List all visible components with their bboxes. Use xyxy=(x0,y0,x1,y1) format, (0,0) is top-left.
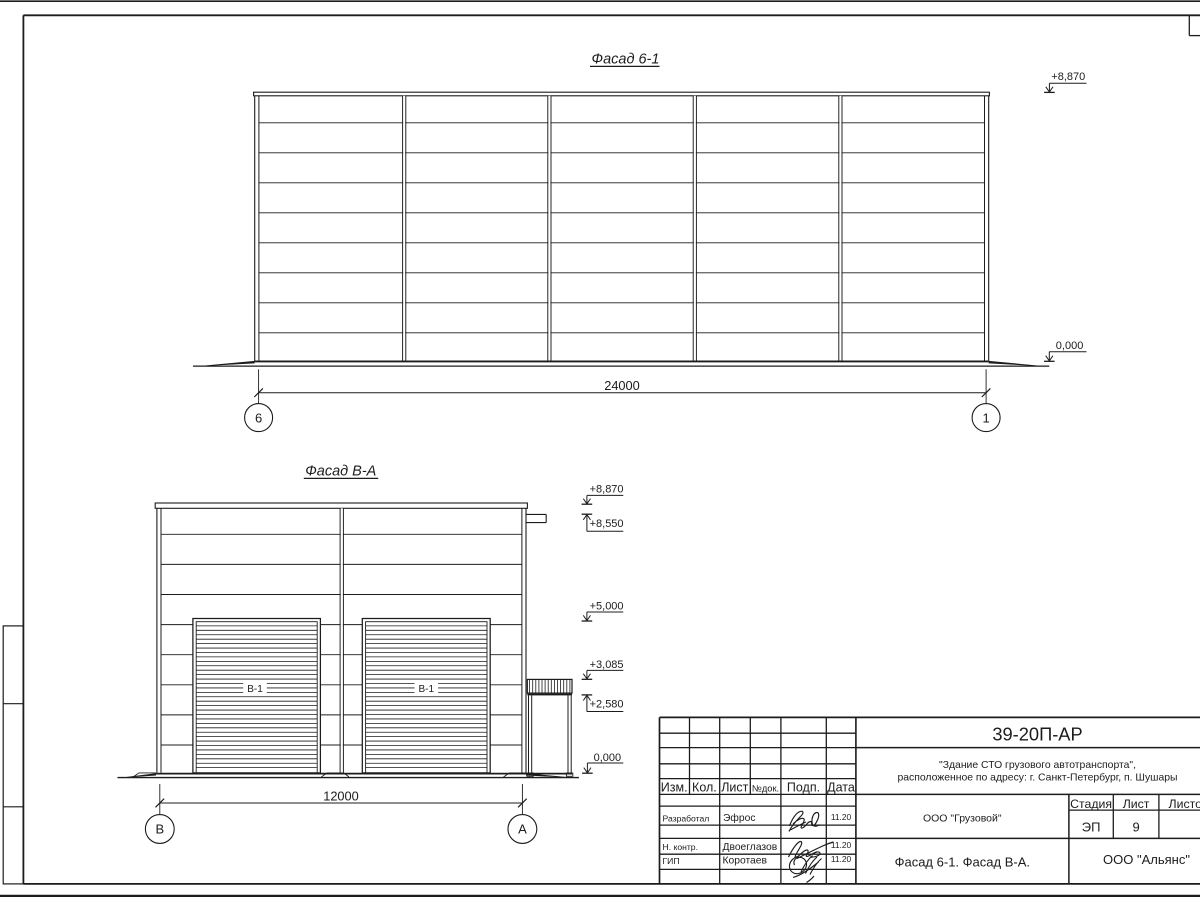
svg-text:ГИП: ГИП xyxy=(663,856,680,866)
svg-text:39-20П-АР: 39-20П-АР xyxy=(992,723,1082,744)
svg-text:11.20: 11.20 xyxy=(831,812,852,822)
svg-text:1: 1 xyxy=(982,410,989,425)
svg-text:Подп.: Подп. xyxy=(787,781,820,795)
svg-text:В: В xyxy=(155,822,164,837)
svg-text:Эфрос: Эфрос xyxy=(723,812,755,824)
svg-text:Н. контр.: Н. контр. xyxy=(663,842,698,852)
svg-text:Кол.: Кол. xyxy=(692,781,717,795)
svg-text:ООО "Альянс": ООО "Альянс" xyxy=(1103,852,1190,867)
svg-text:расположенное по адресу: г. Са: расположенное по адресу: г. Санкт-Петерб… xyxy=(897,772,1177,784)
svg-text:+8,550: +8,550 xyxy=(590,518,624,530)
svg-text:А: А xyxy=(518,822,527,837)
svg-text:24000: 24000 xyxy=(604,378,640,393)
svg-text:0,000: 0,000 xyxy=(594,752,622,764)
svg-text:Фасад 6-1. Фасад В-А.: Фасад 6-1. Фасад В-А. xyxy=(895,855,1030,870)
svg-text:0,000: 0,000 xyxy=(1056,340,1084,352)
svg-text:В-1: В-1 xyxy=(247,684,263,695)
svg-text:+8,870: +8,870 xyxy=(1051,71,1085,83)
svg-text:ЭП: ЭП xyxy=(1082,820,1101,835)
svg-text:В-1: В-1 xyxy=(419,684,435,695)
svg-text:Фасад В-А: Фасад В-А xyxy=(305,463,376,479)
svg-text:12000: 12000 xyxy=(323,789,359,804)
svg-text:Дата: Дата xyxy=(827,781,855,795)
svg-text:Лист: Лист xyxy=(1123,797,1150,811)
svg-text:11.20: 11.20 xyxy=(831,854,852,864)
svg-text:+2,580: +2,580 xyxy=(590,699,624,711)
svg-text:+8,870: +8,870 xyxy=(590,484,624,496)
svg-text:Стадия: Стадия xyxy=(1070,797,1112,811)
svg-text:11.20: 11.20 xyxy=(831,840,852,850)
svg-text:"Здание СТО грузового автотран: "Здание СТО грузового автотранспорта", xyxy=(939,760,1136,771)
svg-text:9: 9 xyxy=(1132,820,1139,835)
svg-text:Разработал: Разработал xyxy=(663,814,710,824)
svg-text:Коротаев: Коротаев xyxy=(723,856,768,867)
svg-text:Двоеглазов: Двоеглазов xyxy=(723,842,778,853)
svg-text:6: 6 xyxy=(255,410,262,425)
svg-text:№док.: №док. xyxy=(752,783,779,793)
svg-text:Листов: Листов xyxy=(1169,797,1200,811)
svg-text:ООО "Грузовой": ООО "Грузовой" xyxy=(923,813,1002,825)
svg-text:+3,085: +3,085 xyxy=(590,659,624,671)
svg-text:+5,000: +5,000 xyxy=(590,601,624,613)
svg-text:Фасад 6-1: Фасад 6-1 xyxy=(592,51,660,67)
svg-text:Лист: Лист xyxy=(721,781,748,795)
svg-text:Изм.: Изм. xyxy=(661,781,688,795)
